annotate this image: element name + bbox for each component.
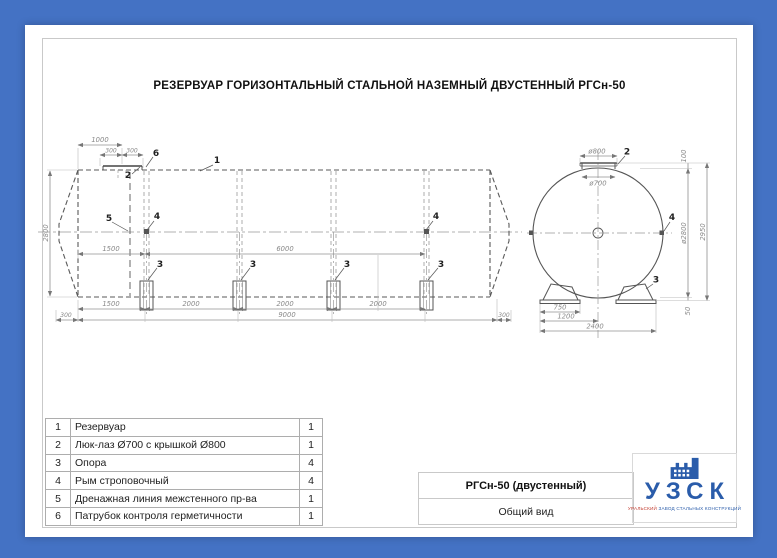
dim-750: 750 [554, 304, 567, 312]
table-row: 1 Резервуар 1 [46, 419, 323, 437]
view-name: Общий вид [419, 499, 633, 524]
part-name: Резервуар [71, 419, 300, 437]
dim-d2800: ø2800 [680, 222, 688, 244]
dim-1500-lower: 1500 [102, 300, 119, 308]
tagline-rest: ЗАВОД СТАЛЬНЫХ КОНСТРУКЦИЙ [657, 506, 741, 511]
part-qty: 1 [300, 419, 323, 437]
desktop-background: { "sheet": { "title": "РЕЗЕРВУАР ГОРИЗОН… [0, 0, 777, 558]
dim-d700: ø700 [588, 180, 606, 188]
support-ring-lines [144, 171, 429, 296]
dim-2800: 2800 [42, 224, 50, 241]
end-view: ø800 ø700 100 ø2800 2950 50 750 1200 240… [527, 148, 710, 339]
end-ref-4: 4 [669, 213, 675, 223]
part-number: 2 [46, 436, 71, 454]
dim-2400: 2400 [586, 323, 603, 331]
tagline-word1: УРАЛЬСКИЙ [628, 506, 657, 511]
title-block: РГСн-50 (двустенный) Общий вид [418, 472, 634, 525]
table-row: 4 Рым строповочный 4 [46, 472, 323, 490]
dim-100: 100 [680, 150, 688, 163]
manhole-side [103, 166, 142, 179]
side-extension-lines [47, 148, 511, 322]
dim-9000: 9000 [278, 311, 295, 319]
side-view: 1000 300 300 2800 1500 6000 1500 2000 20… [38, 136, 522, 322]
dim-1500-upper: 1500 [102, 245, 119, 253]
dim-1000: 1000 [91, 136, 108, 144]
end-centerlines [527, 150, 672, 338]
end-eye-right [660, 231, 665, 236]
dim-300-bottomright: 300 [498, 312, 510, 319]
part-number: 1 [46, 419, 71, 437]
part-name: Рым строповочный [71, 472, 300, 490]
ref-4-right: 4 [433, 212, 439, 222]
table-row: 3 Опора 4 [46, 454, 323, 472]
factory-icon [666, 457, 704, 479]
model-designation: РГСн-50 (двустенный) [419, 473, 633, 499]
ref-6: 6 [153, 149, 159, 159]
ref-1: 1 [214, 156, 220, 166]
dim-300-bottomleft: 300 [60, 312, 72, 319]
part-name: Люк-лаз Ø700 с крышкой Ø800 [71, 436, 300, 454]
dim-50: 50 [684, 307, 692, 316]
drawing-sheet: РЕЗЕРВУАР ГОРИЗОНТАЛЬНЫЙ СТАЛЬНОЙ НАЗЕМН… [25, 25, 753, 537]
dim-2000-1: 2000 [182, 300, 199, 308]
part-name: Дренажная линия межстенного пр-ва [71, 490, 300, 508]
part-name: Опора [71, 454, 300, 472]
logo-tagline: УРАЛЬСКИЙ ЗАВОД СТАЛЬНЫХ КОНСТРУКЦИЙ [628, 506, 741, 511]
ref-3-2: 3 [250, 260, 256, 270]
dim-2000-3: 2000 [369, 300, 386, 308]
dim-1200: 1200 [557, 313, 574, 321]
tank-shell-outline [59, 170, 509, 297]
dim-300-right: 300 [126, 148, 138, 155]
part-qty: 4 [300, 472, 323, 490]
dim-2000-2: 2000 [276, 300, 293, 308]
table-row: 2 Люк-лаз Ø700 с крышкой Ø800 1 [46, 436, 323, 454]
part-name: Патрубок контроля герметичности [71, 507, 300, 525]
part-number: 6 [46, 507, 71, 525]
lifting-eye-left [144, 229, 149, 234]
logo-acronym: УЗСК [639, 480, 730, 504]
part-number: 3 [46, 454, 71, 472]
company-logo: УЗСК УРАЛЬСКИЙ ЗАВОД СТАЛЬНЫХ КОНСТРУКЦИ… [632, 453, 737, 523]
dim-300-left: 300 [105, 148, 117, 155]
part-number: 5 [46, 490, 71, 508]
dim-d800: ø800 [587, 148, 605, 156]
side-dimension-lines [50, 145, 511, 320]
parts-table: 1 Резервуар 1 2 Люк-лаз Ø700 с крышкой Ø… [45, 418, 323, 526]
table-row: 6 Патрубок контроля герметичности 1 [46, 507, 323, 525]
end-eye-left [529, 231, 534, 236]
ref-3-3: 3 [344, 260, 350, 270]
end-ref-2: 2 [624, 148, 630, 158]
end-ref-3: 3 [653, 276, 659, 286]
ref-5: 5 [106, 214, 112, 224]
ref-2: 2 [125, 171, 131, 181]
part-qty: 1 [300, 490, 323, 508]
table-row: 5 Дренажная линия межстенного пр-ва 1 [46, 490, 323, 508]
part-qty: 4 [300, 454, 323, 472]
part-qty: 1 [300, 507, 323, 525]
part-number: 4 [46, 472, 71, 490]
dim-2950: 2950 [699, 223, 707, 240]
ref-3-1: 3 [157, 260, 163, 270]
ref-3-4: 3 [438, 260, 444, 270]
part-qty: 1 [300, 436, 323, 454]
ref-4-left: 4 [154, 212, 160, 222]
dim-6000: 6000 [276, 245, 293, 253]
